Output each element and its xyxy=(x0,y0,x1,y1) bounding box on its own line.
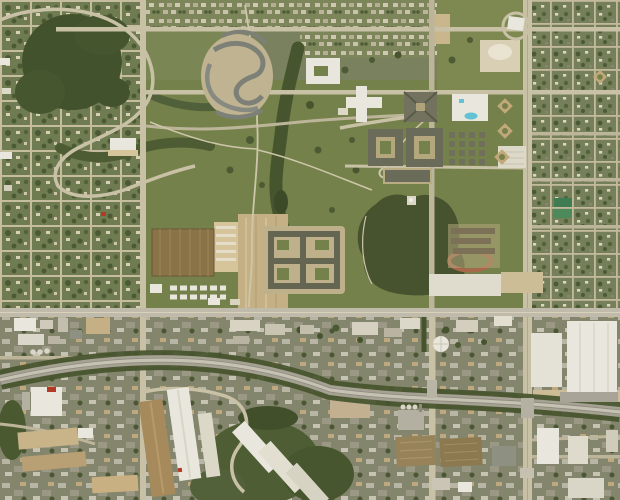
loop-forest xyxy=(74,15,130,55)
small-building-southeast xyxy=(520,468,534,478)
school-cross-building-wing xyxy=(356,86,367,122)
small-building-south xyxy=(458,482,472,492)
gray-annex xyxy=(22,392,30,410)
recreation-pool-small xyxy=(459,99,464,103)
lake-pier-structure xyxy=(409,198,413,202)
school-south-annex xyxy=(501,272,543,293)
street-east xyxy=(532,178,620,182)
park-tree xyxy=(342,67,349,74)
tree xyxy=(333,325,340,332)
storage-tank xyxy=(44,348,50,354)
industrial-plant xyxy=(14,318,36,331)
rail-overpass-east xyxy=(521,398,534,418)
industrial-plant xyxy=(18,334,44,345)
school-south-building xyxy=(429,274,501,296)
commercial-strip xyxy=(230,299,240,305)
sports-court xyxy=(554,209,572,218)
commercial-building xyxy=(233,336,249,344)
park-tree xyxy=(227,167,234,174)
smokestack xyxy=(419,404,422,412)
recreation-pool xyxy=(465,113,478,120)
park-tree xyxy=(449,57,456,64)
tan-warehouse xyxy=(92,475,139,493)
construction-white xyxy=(488,44,512,60)
storage-row xyxy=(216,242,236,245)
big-white-warehouse-east xyxy=(567,321,617,397)
red-dock-detail xyxy=(178,468,183,473)
red-roof-house xyxy=(101,212,106,216)
park-tree xyxy=(329,207,335,213)
park-tree xyxy=(369,57,375,63)
industrial-plant xyxy=(58,318,68,332)
park-tree xyxy=(315,147,322,154)
small-building-southeast xyxy=(606,430,618,452)
warehouse-southeast xyxy=(568,436,588,464)
west-edge-building xyxy=(2,88,11,94)
silo-plant xyxy=(398,410,424,430)
apartment-courtyard-green xyxy=(380,141,391,154)
baseball-infield xyxy=(502,103,508,109)
white-warehouse-red-detail xyxy=(31,387,62,416)
park-tree xyxy=(349,137,355,143)
west-edge-building xyxy=(4,185,12,191)
park-tree xyxy=(395,52,402,59)
scene-root xyxy=(0,0,620,500)
tree xyxy=(455,342,461,348)
silo xyxy=(407,405,412,410)
aerial-map-view[interactable] xyxy=(0,0,620,500)
white-warehouse-east xyxy=(531,333,562,387)
loop-forest xyxy=(15,70,65,114)
loop-forest xyxy=(94,77,130,107)
industrial-plant xyxy=(48,336,60,344)
commercial-small xyxy=(110,138,136,150)
industrial-plant xyxy=(40,320,53,329)
industrial-plant xyxy=(70,330,82,339)
commercial-building xyxy=(265,324,285,335)
west-edge-building xyxy=(0,152,12,159)
suburb-north-strip xyxy=(146,0,306,30)
storage-row xyxy=(216,250,236,253)
school-courtyard xyxy=(314,66,328,76)
commercial-building xyxy=(456,320,478,332)
serpentine-subdivision-base xyxy=(201,34,273,118)
silo xyxy=(413,405,418,410)
creek-pond xyxy=(274,190,288,214)
apartment-long-building xyxy=(385,170,430,182)
apartment-maze-court xyxy=(315,240,329,250)
apartment-maze-court xyxy=(315,268,329,280)
small-building-south xyxy=(432,478,450,490)
street-east xyxy=(532,225,620,229)
warehouse-southeast xyxy=(568,478,604,498)
circular-drive-building xyxy=(507,16,525,31)
dark-building-southeast xyxy=(492,446,516,466)
apartment-row xyxy=(453,248,495,254)
baseball-infield xyxy=(502,128,508,134)
storage-row xyxy=(216,258,236,261)
apartment-maze-court xyxy=(277,268,289,280)
park-tree xyxy=(306,101,314,109)
warehouse-southeast xyxy=(537,428,559,464)
commercial-yard xyxy=(108,150,138,156)
tree xyxy=(481,339,487,345)
storage-tank xyxy=(37,349,43,355)
baseball-infield xyxy=(499,154,505,160)
commercial-building xyxy=(494,316,512,326)
storage-row xyxy=(216,226,236,229)
apartment-row xyxy=(451,238,491,244)
big-brown-warehouse xyxy=(152,229,214,276)
baseball-infield xyxy=(597,74,603,80)
rail-overpass-center xyxy=(427,380,437,398)
park-tree xyxy=(467,37,473,43)
commercial-building xyxy=(300,325,314,334)
radial-roof-court xyxy=(416,103,425,111)
loading-apron xyxy=(560,392,618,402)
tree xyxy=(317,333,323,339)
commercial-building xyxy=(352,322,378,335)
sports-court xyxy=(554,198,572,207)
apartment-courtyard-green xyxy=(419,141,430,154)
satellite-map[interactable] xyxy=(0,0,620,500)
silo xyxy=(401,405,406,410)
tree xyxy=(357,337,363,343)
residential-southwest-grid xyxy=(0,105,143,310)
storage-dirt-rows xyxy=(214,222,238,272)
commercial-building xyxy=(230,320,260,331)
west-edge-building xyxy=(0,58,10,65)
commercial-building xyxy=(400,318,420,329)
apartment-row xyxy=(451,228,495,234)
commercial-building xyxy=(384,328,402,337)
small-office xyxy=(150,284,162,293)
park-tree xyxy=(259,182,265,188)
storage-row xyxy=(216,234,236,237)
street-east xyxy=(532,132,620,136)
dirt-patch-west xyxy=(86,318,110,334)
red-roof-section xyxy=(47,387,56,392)
residential-east-grid xyxy=(532,0,620,310)
storage-tank xyxy=(30,349,36,355)
park-tree xyxy=(246,136,254,144)
commercial-strip xyxy=(208,298,220,305)
apartment-maze-court xyxy=(277,240,289,250)
small-white-building xyxy=(78,428,93,438)
school-cross-building-annex xyxy=(338,108,348,115)
tree xyxy=(443,327,450,334)
